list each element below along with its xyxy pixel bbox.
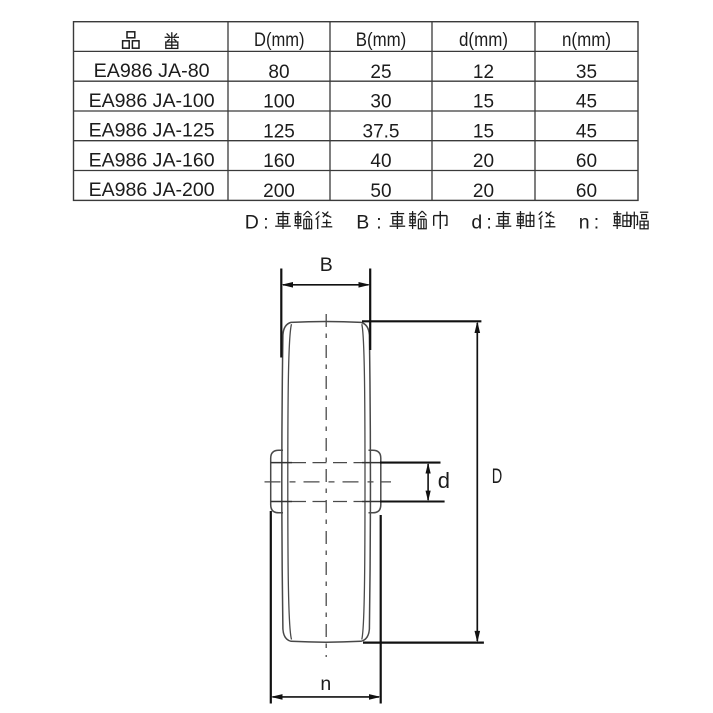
svg-text:EA986 JA-125: EA986 JA-125 [89,121,215,142]
svg-text:12: 12 [473,62,494,83]
svg-text::: : [263,211,268,233]
svg-text::: : [486,211,491,233]
svg-text:D(mm): D(mm) [254,30,305,51]
svg-text:37.5: 37.5 [363,121,400,142]
svg-text:200: 200 [263,181,295,202]
svg-text:B(mm): B(mm) [356,30,407,51]
svg-text:40: 40 [370,151,391,172]
svg-text:60: 60 [576,151,597,172]
svg-text:20: 20 [473,151,494,172]
svg-text:60: 60 [576,181,597,202]
svg-text:125: 125 [263,121,295,142]
svg-text:n: n [320,673,331,695]
svg-text:d: d [471,211,482,233]
svg-text:B: B [356,211,369,233]
svg-text:n(mm): n(mm) [562,30,611,51]
svg-text::: : [376,211,381,233]
svg-text:15: 15 [473,92,494,113]
svg-text:160: 160 [263,151,295,172]
svg-text:20: 20 [473,181,494,202]
svg-text:100: 100 [263,92,295,113]
svg-text:d: d [438,468,450,493]
svg-text::: : [594,211,599,233]
svg-text:15: 15 [473,121,494,142]
svg-text:B: B [320,254,333,276]
svg-text:D: D [492,465,503,488]
svg-text:EA986 JA-80: EA986 JA-80 [94,61,210,82]
svg-text:50: 50 [370,181,391,202]
svg-text:45: 45 [576,121,597,142]
svg-text:d(mm): d(mm) [459,30,508,51]
svg-text:45: 45 [576,92,597,113]
svg-text:EA986 JA-200: EA986 JA-200 [89,180,215,201]
svg-text:80: 80 [268,62,289,83]
svg-text:D: D [245,211,259,233]
svg-text:EA986 JA-100: EA986 JA-100 [89,91,215,112]
svg-text:EA986 JA-160: EA986 JA-160 [89,151,215,172]
svg-text:35: 35 [576,62,597,83]
svg-text:n: n [579,211,590,233]
svg-text:25: 25 [370,62,391,83]
svg-text:30: 30 [370,92,391,113]
